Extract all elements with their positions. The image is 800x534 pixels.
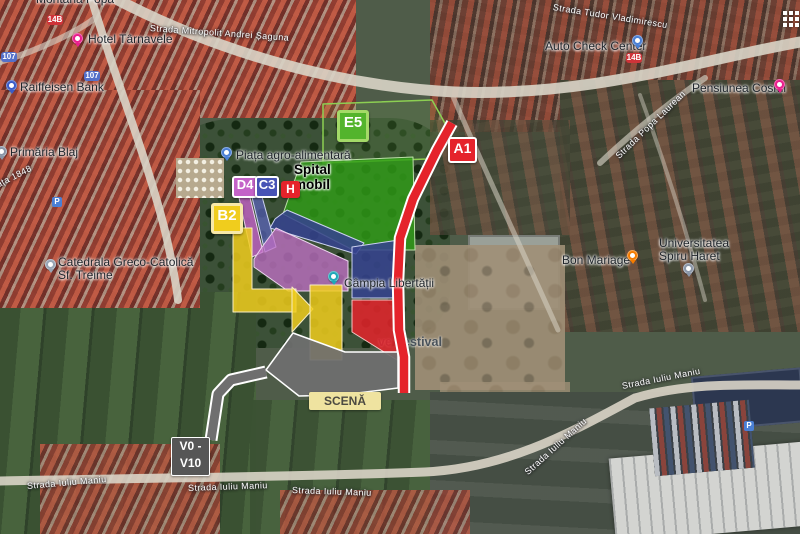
satellite-map[interactable]: Strada Mitropolit Andrei ȘagunaStrada Tu… <box>0 0 800 534</box>
poi-label-montana-popa[interactable]: Montana Popa <box>36 0 114 6</box>
box-v0-v10-line: V10 <box>172 455 209 472</box>
badge-b2[interactable]: B2 <box>211 203 243 234</box>
badge-a1[interactable]: A1 <box>448 137 477 163</box>
badge-c3[interactable]: C3 <box>255 176 279 198</box>
badge-e5[interactable]: E5 <box>337 110 369 142</box>
poi-label-catedrala-greco-catolica[interactable]: Catedrala Greco-Catolică Sf. Treime <box>58 256 193 282</box>
restaurant-pin-icon[interactable] <box>627 250 638 261</box>
poi-label-primaria-blaj[interactable]: Primăria Blaj <box>10 146 78 159</box>
church-pin-icon[interactable] <box>45 259 56 270</box>
box-scena[interactable]: SCENĂ <box>309 392 381 410</box>
poi-label-raiffeisen-bank[interactable]: Raiffeisen Bank <box>20 81 104 94</box>
market-pin-icon[interactable] <box>221 147 232 158</box>
university-pin-icon[interactable] <box>683 263 694 274</box>
poi-label-hotel-tarnavele[interactable]: Hotel Târnavele <box>88 33 173 46</box>
box-v0-v10[interactable]: V0 -V10 <box>171 437 210 476</box>
poi-label-universitatea-spiru-haret[interactable]: Universitatea Spiru Haret <box>659 237 729 263</box>
badge-h[interactable]: H <box>281 181 300 198</box>
government-pin-icon[interactable] <box>0 146 7 157</box>
poi-label-campia-libertatii[interactable]: Câmpia Libertății <box>344 277 434 290</box>
poi-label-layer: Montana PopaHotel TârnaveleRaiffeisen Ba… <box>0 0 800 534</box>
park-pin-icon[interactable] <box>328 271 339 282</box>
poi-label-piata-agro-alimentara[interactable]: Piața agro-alimentară <box>236 149 351 162</box>
box-scena-line: SCENĂ <box>310 393 380 409</box>
apps-grid-icon[interactable] <box>783 11 799 27</box>
bank-pin-icon[interactable] <box>6 80 17 91</box>
auto-pin-icon[interactable] <box>632 35 643 46</box>
box-v0-v10-line: V0 - <box>172 438 209 455</box>
hotel-pin-icon[interactable] <box>72 33 83 44</box>
poi-label-bon-mariage[interactable]: Bon Mariage <box>562 254 630 267</box>
lodging-pin-icon[interactable] <box>774 79 785 90</box>
poi-label-pensiunea-cosmi[interactable]: Pensiunea Cosmi <box>692 82 786 95</box>
poi-label-auto-check-center[interactable]: Auto Check Center <box>545 40 646 53</box>
